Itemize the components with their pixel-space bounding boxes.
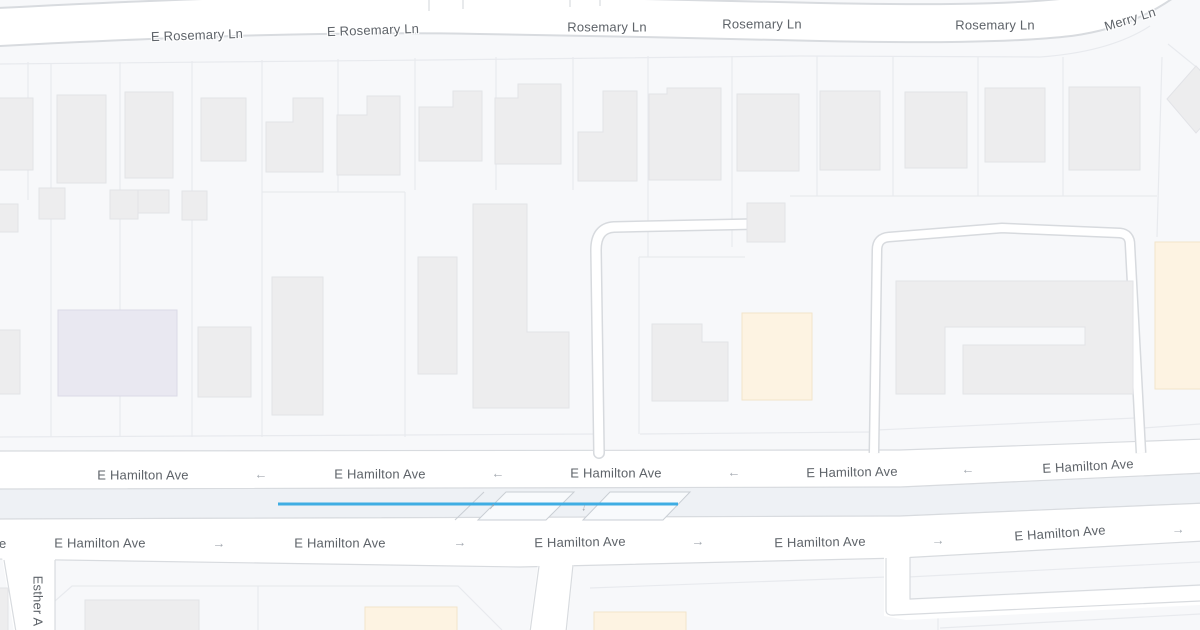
street-label-rosemary: Rosemary Ln — [567, 20, 647, 35]
street-label-rosemary: Rosemary Ln — [722, 17, 802, 32]
street-label-rosemary: E Rosemary Ln — [151, 26, 244, 44]
road-esther — [2, 557, 55, 630]
road-side-street-middle — [529, 563, 574, 630]
one-way-left-arrow-icon: ← — [255, 467, 268, 482]
street-label-hamilton: E Hamilton Ave — [774, 534, 866, 551]
one-way-right-arrow-icon: → — [931, 532, 945, 547]
street-label-hamilton: E Hamilton Ave — [806, 464, 898, 481]
street-label-hamilton: E Hamilton Ave — [334, 467, 425, 482]
building-civic — [58, 310, 177, 396]
map-canvas[interactable]: E Rosemary Ln E Rosemary Ln Rosemary Ln … — [0, 0, 1200, 630]
one-way-left-arrow-icon: ← — [962, 462, 975, 477]
street-label-hamilton: E Hamilton Ave — [570, 466, 661, 481]
street-label-hamilton: E Hamilton Ave — [54, 536, 145, 551]
one-way-right-arrow-icon: → — [213, 536, 226, 551]
one-way-left-arrow-icon: ← — [728, 465, 741, 480]
street-label-esther: Esther A — [31, 576, 46, 627]
street-label-hamilton: E Hamilton Ave — [294, 536, 385, 551]
street-label-hamilton: E Hamilton Ave — [534, 534, 626, 551]
one-way-right-arrow-icon: → — [1171, 521, 1185, 537]
one-way-right-arrow-icon: → — [454, 535, 467, 550]
street-label-clipped: e — [0, 536, 6, 551]
street-label-rosemary: Rosemary Ln — [955, 18, 1035, 33]
one-way-right-arrow-icon: → — [692, 534, 705, 549]
one-way-left-arrow-icon: ← — [492, 466, 505, 481]
street-label-hamilton: E Hamilton Ave — [97, 468, 188, 483]
street-label-rosemary: E Rosemary Ln — [327, 21, 420, 39]
